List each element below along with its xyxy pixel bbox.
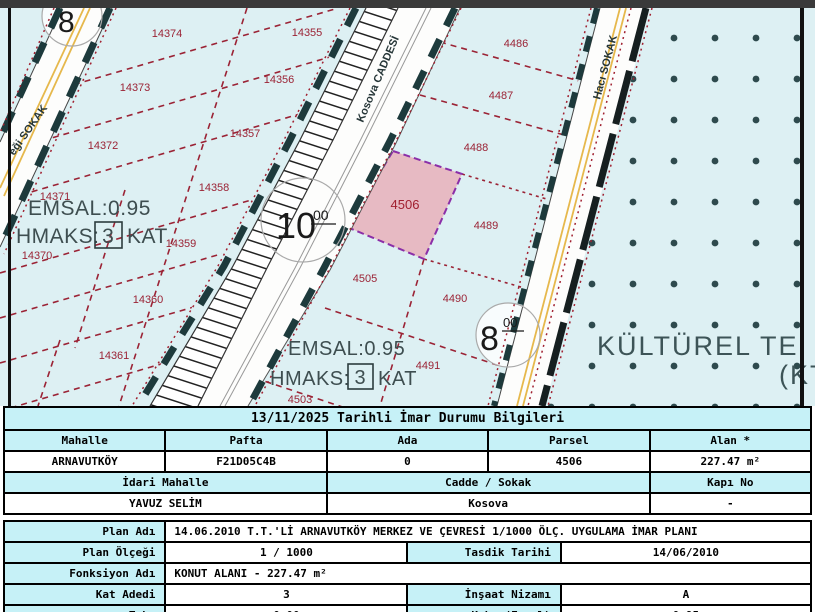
parcel-label: 14360 (133, 294, 164, 306)
value-plan-olcegi: 1 / 1000 (165, 542, 407, 563)
parcel-info-table: 13/11/2025 Tarihli İmar Durumu Bilgileri… (3, 406, 812, 515)
header-ada: Ada (327, 430, 488, 451)
parcel-label: 14373 (120, 82, 151, 94)
label-insaat-nizami: İnşaat Nizamı (407, 584, 560, 605)
parcel-label: 14355 (292, 27, 323, 39)
header-kapi-no: Kapı No (650, 472, 811, 493)
label-fonksiyon-adi: Fonksiyon Adı (4, 563, 165, 584)
parcel-label: 4489 (474, 220, 498, 232)
parcel-label: 4490 (443, 293, 467, 305)
road-width-value: 8 (58, 8, 75, 39)
plan-info-table: Plan Adı 14.06.2010 T.T.'Lİ ARNAVUTKÖY M… (3, 520, 812, 612)
kat-text: KAT (127, 225, 168, 248)
value-taks: 0.00 (165, 605, 407, 612)
value-plan-adi: 14.06.2010 T.T.'Lİ ARNAVUTKÖY MERKEZ VE … (165, 521, 811, 542)
parcel-label: 14370 (22, 250, 53, 262)
imar-durumu-screen: 14374 14355 14373 14356 14372 14357 1435… (0, 0, 815, 612)
value-pafta: F21D05C4B (165, 451, 326, 472)
emsal-text: EMSAL:0.95 (28, 197, 151, 220)
parcel-label: 4488 (464, 142, 488, 154)
value-ada: 0 (327, 451, 488, 472)
value-fonksiyon-adi: KONUT ALANI - 227.47 m² (165, 563, 811, 584)
value-parsel: 4506 (488, 451, 649, 472)
value-alan: 227.47 m² (650, 451, 811, 472)
selected-parcel-label: 4506 (391, 197, 420, 212)
parcel-label: 14356 (264, 74, 295, 86)
header-cadde-sokak: Cadde / Sokak (327, 472, 650, 493)
header-parsel: Parsel (488, 430, 649, 451)
kt-label-line1: KÜLTÜREL TE (597, 331, 799, 361)
parcel-label: 14372 (88, 140, 119, 152)
value-cadde-sokak: Kosova (327, 493, 650, 514)
value-tasdik-tarihi: 14/06/2010 (561, 542, 811, 563)
header-mahalle: Mahalle (4, 430, 165, 451)
road-width-value: 10 (276, 205, 316, 246)
header-pafta: Pafta (165, 430, 326, 451)
parcel-label: 4486 (504, 38, 528, 50)
parcel-label: 4487 (489, 90, 513, 102)
value-idari-mahalle: YAVUZ SELİM (4, 493, 327, 514)
label-kat-adedi: Kat Adedi (4, 584, 165, 605)
value-insaat-nizami: A (561, 584, 811, 605)
map-frame-left (8, 8, 11, 406)
emsal-text: EMSAL:0.95 (288, 338, 405, 360)
kat-text: KAT (378, 368, 417, 390)
parcel-label: 4505 (353, 273, 377, 285)
road-width-value: 8 (480, 320, 499, 358)
label-plan-olcegi: Plan Ölçeği (4, 542, 165, 563)
floors-value: 3 (354, 367, 365, 389)
window-top-bar (0, 0, 815, 8)
value-kat-adedi: 3 (165, 584, 407, 605)
hmaks-text: HMAKS: (270, 368, 350, 390)
label-taks: Taks (4, 605, 165, 612)
parcel-label: 14359 (166, 238, 197, 250)
header-alan: Alan * (650, 430, 811, 451)
parcel-label: 14357 (230, 128, 261, 140)
info-table-title: 13/11/2025 Tarihli İmar Durumu Bilgileri (4, 407, 811, 430)
label-plan-adi: Plan Adı (4, 521, 165, 542)
parcel-label: 4503 (288, 394, 312, 406)
map-frame-right (800, 8, 804, 406)
parcel-label: 14361 (99, 350, 130, 362)
header-idari-mahalle: İdari Mahalle (4, 472, 327, 493)
parcel-label: 4491 (416, 360, 440, 372)
zoning-map[interactable]: 14374 14355 14373 14356 14372 14357 1435… (0, 8, 815, 406)
parcel-label: 14358 (199, 182, 230, 194)
road-width-sup: 00 (503, 315, 517, 330)
value-kapi-no: - (650, 493, 811, 514)
value-mahalle: ARNAVUTKÖY (4, 451, 165, 472)
label-kaks-emsal: Kaks (Emsal) (407, 605, 560, 612)
label-tasdik-tarihi: Tasdik Tarihi (407, 542, 560, 563)
road-width-sup: 00 (313, 207, 329, 223)
parcel-label: 14374 (152, 28, 183, 40)
kt-label-line2: (KT (779, 360, 815, 390)
floors-value: 3 (102, 225, 114, 248)
imar-info-panel: 13/11/2025 Tarihli İmar Durumu Bilgileri… (3, 406, 812, 612)
value-kaks-emsal: 0.95 (561, 605, 811, 612)
hmaks-text: HMAKS: (16, 225, 100, 248)
